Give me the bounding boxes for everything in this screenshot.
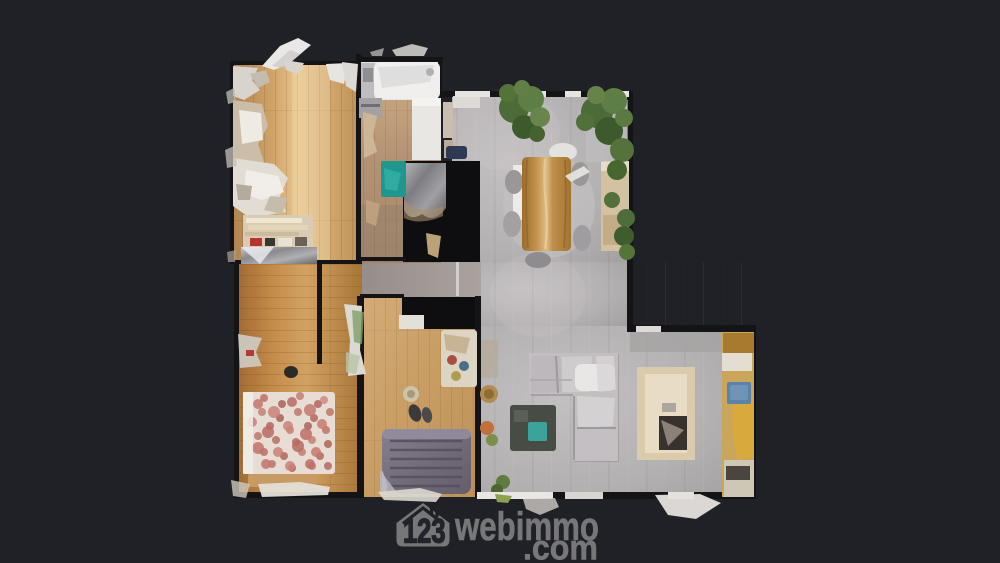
svg-text:123: 123	[403, 513, 446, 551]
svg-text:.com: .com	[523, 529, 598, 563]
